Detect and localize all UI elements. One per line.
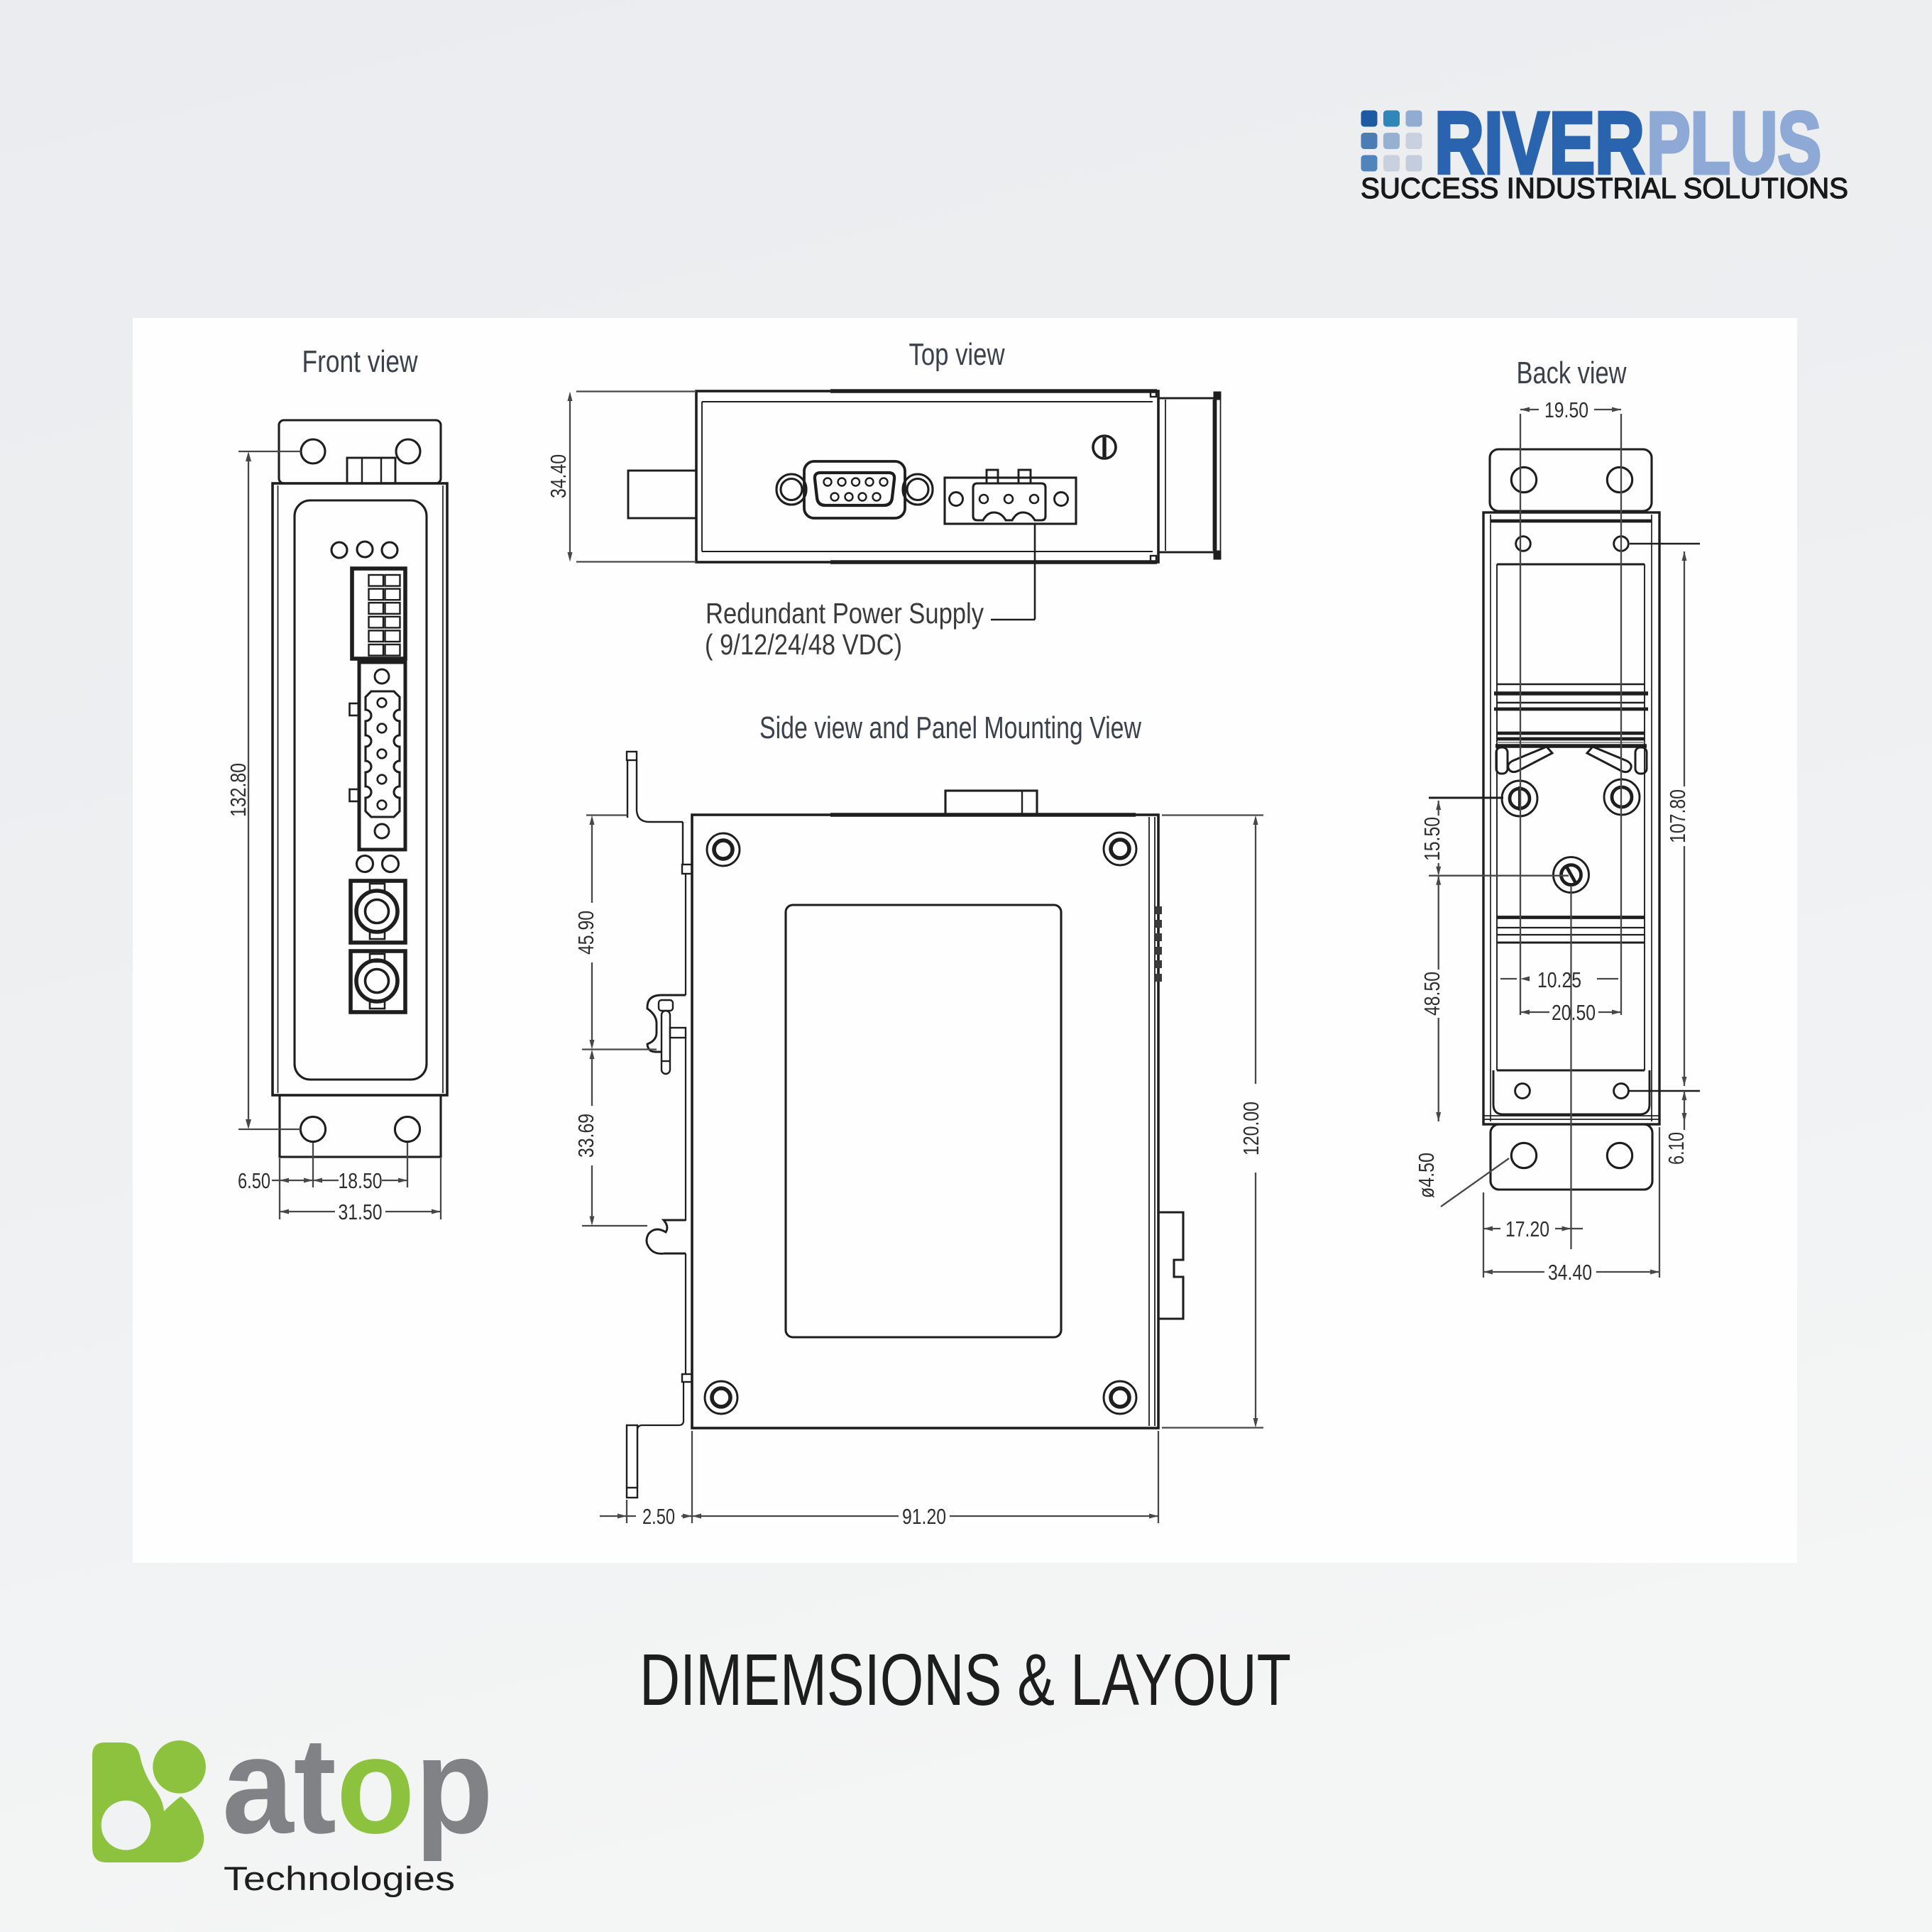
svg-text:132.80: 132.80 bbox=[226, 763, 251, 817]
svg-text:DIMEMSIONS & LAYOUT: DIMEMSIONS & LAYOUT bbox=[640, 1639, 1291, 1720]
svg-text:31.50: 31.50 bbox=[339, 1200, 383, 1224]
svg-text:120.00: 120.00 bbox=[1239, 1102, 1263, 1156]
svg-text:48.50: 48.50 bbox=[1420, 972, 1444, 1016]
svg-text:SUCCESS INDUSTRIAL SOLUTIONS: SUCCESS INDUSTRIAL SOLUTIONS bbox=[1361, 172, 1848, 204]
svg-text:Technologies: Technologies bbox=[224, 1860, 455, 1898]
svg-text:33.69: 33.69 bbox=[573, 1114, 598, 1158]
svg-text:6.50: 6.50 bbox=[238, 1168, 270, 1193]
svg-text:34.40: 34.40 bbox=[1548, 1260, 1592, 1285]
svg-text:Top view: Top view bbox=[909, 337, 1005, 372]
svg-text:ø4.50: ø4.50 bbox=[1414, 1153, 1439, 1198]
svg-text:107.80: 107.80 bbox=[1665, 789, 1690, 843]
svg-text:17.20: 17.20 bbox=[1505, 1217, 1549, 1241]
svg-text:20.50: 20.50 bbox=[1552, 1000, 1596, 1025]
svg-text:( 9/12/24/48 VDC): ( 9/12/24/48 VDC) bbox=[705, 628, 902, 661]
svg-text:Back view: Back view bbox=[1517, 356, 1627, 390]
svg-text:34.40: 34.40 bbox=[546, 454, 571, 498]
svg-text:Front view: Front view bbox=[302, 344, 418, 379]
svg-text:2.50: 2.50 bbox=[642, 1504, 675, 1529]
svg-text:atop: atop bbox=[222, 1708, 493, 1862]
svg-text:18.50: 18.50 bbox=[339, 1168, 383, 1193]
svg-text:15.50: 15.50 bbox=[1420, 817, 1444, 861]
svg-text:Redundant Power Supply: Redundant Power Supply bbox=[706, 597, 984, 630]
svg-text:45.90: 45.90 bbox=[573, 911, 598, 955]
svg-text:6.10: 6.10 bbox=[1664, 1132, 1689, 1165]
svg-text:91.20: 91.20 bbox=[902, 1504, 946, 1529]
svg-text:10.25: 10.25 bbox=[1537, 967, 1581, 992]
svg-text:19.50: 19.50 bbox=[1544, 397, 1588, 422]
svg-text:Side view and Panel Mounting V: Side view and Panel Mounting View bbox=[759, 710, 1141, 745]
